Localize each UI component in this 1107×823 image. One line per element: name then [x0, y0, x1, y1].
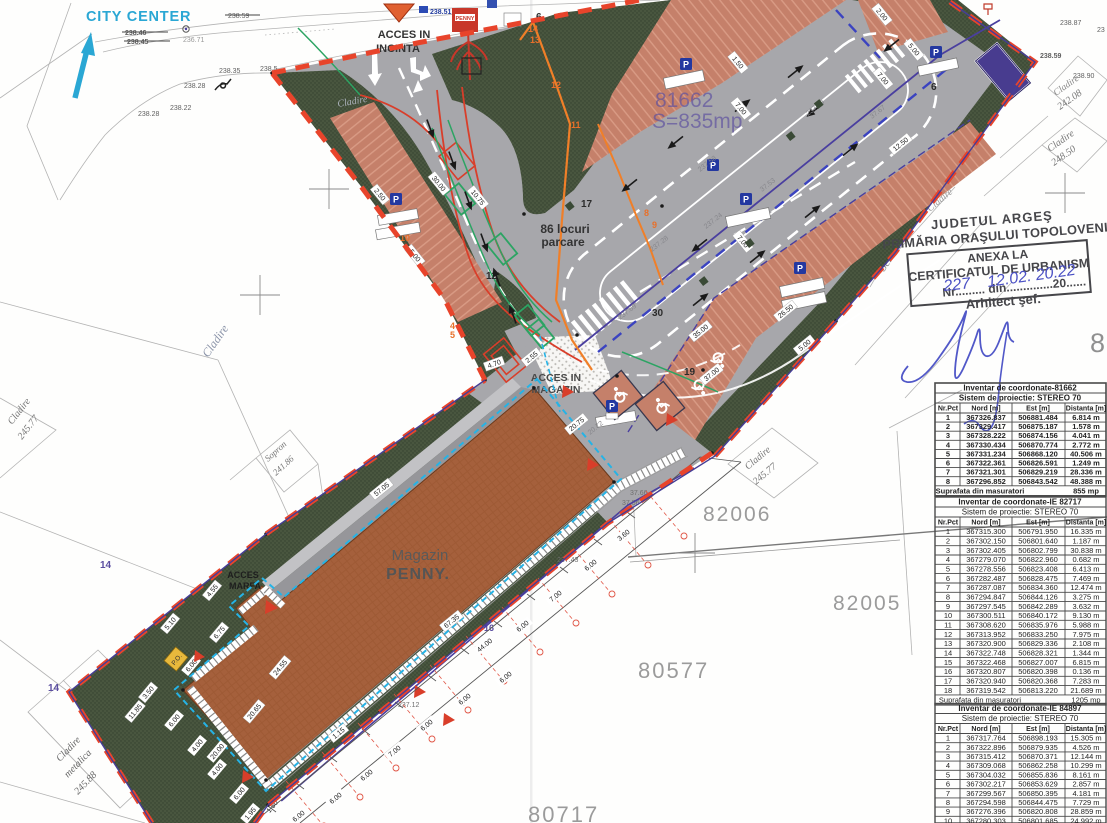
svg-text:Distanta [m]: Distanta [m] [1066, 406, 1106, 413]
svg-text:6: 6 [931, 82, 937, 93]
svg-text:367328.222: 367328.222 [966, 431, 1006, 440]
svg-text:506820.368: 506820.368 [1018, 676, 1058, 685]
svg-text:ACCES: ACCES [227, 570, 259, 580]
svg-text:5.988 m: 5.988 m [1072, 621, 1099, 630]
svg-text:506829.219: 506829.219 [1018, 468, 1058, 477]
svg-text:237.12: 237.12 [398, 702, 420, 709]
svg-text:2.857 m: 2.857 m [1072, 780, 1099, 789]
svg-text:81662: 81662 [655, 89, 713, 112]
svg-text:367302.405: 367302.405 [966, 546, 1006, 555]
svg-text:367331.234: 367331.234 [966, 449, 1006, 458]
svg-text:S=835mp: S=835mp [652, 110, 742, 133]
svg-text:23: 23 [1097, 27, 1105, 34]
svg-text:2: 2 [946, 422, 950, 431]
svg-text:Inventar de coordonate-IE 8271: Inventar de coordonate-IE 82717 [958, 498, 1082, 507]
svg-text:40.506 m: 40.506 m [1070, 449, 1102, 458]
svg-text:367287.087: 367287.087 [966, 583, 1006, 592]
svg-text:16.335 m: 16.335 m [1070, 527, 1101, 536]
svg-text:5: 5 [946, 770, 950, 779]
svg-text:7: 7 [946, 583, 950, 592]
svg-text:1.187 m: 1.187 m [1072, 537, 1099, 546]
svg-text:506802.799: 506802.799 [1018, 546, 1058, 555]
svg-text:367315.300: 367315.300 [966, 527, 1006, 536]
svg-text:13: 13 [530, 35, 540, 45]
svg-text:367326.837: 367326.837 [966, 413, 1006, 422]
svg-text:8: 8 [1090, 328, 1105, 358]
svg-text:367319.542: 367319.542 [966, 686, 1006, 695]
svg-text:12: 12 [551, 80, 561, 90]
svg-text:506868.120: 506868.120 [1018, 449, 1058, 458]
svg-text:6: 6 [946, 574, 950, 583]
svg-text:P: P [609, 402, 615, 412]
svg-text:9.130 m: 9.130 m [1072, 611, 1099, 620]
svg-text:80717: 80717 [528, 802, 599, 823]
svg-text:14: 14 [528, 24, 538, 34]
svg-text:82006: 82006 [703, 503, 771, 526]
svg-text:parcare: parcare [541, 235, 585, 249]
svg-text:14: 14 [944, 649, 952, 658]
svg-text:367320.940: 367320.940 [966, 676, 1006, 685]
svg-text:367321.301: 367321.301 [966, 468, 1006, 477]
svg-text:506820.398: 506820.398 [1018, 667, 1058, 676]
svg-text:Inventar de coordonate-IE 8489: Inventar de coordonate-IE 84897 [958, 704, 1082, 713]
svg-text:12.474 m: 12.474 m [1070, 583, 1101, 592]
svg-text:10.299 m: 10.299 m [1070, 761, 1101, 770]
svg-text:12.144 m: 12.144 m [1070, 752, 1101, 761]
svg-text:9: 9 [946, 602, 950, 611]
svg-text:506791.950: 506791.950 [1018, 527, 1058, 536]
svg-text:CITY CENTER: CITY CENTER [86, 9, 191, 25]
svg-text:7.975 m: 7.975 m [1072, 630, 1099, 639]
svg-text:PENNY.: PENNY. [386, 566, 450, 583]
svg-text:Nord [m]: Nord [m] [971, 406, 1000, 413]
svg-text:P: P [933, 48, 939, 58]
svg-text:506850.395: 506850.395 [1018, 789, 1058, 798]
svg-text:506862.258: 506862.258 [1018, 761, 1058, 770]
svg-text:7.729 m: 7.729 m [1072, 798, 1099, 807]
svg-text:17: 17 [944, 676, 952, 685]
svg-text:367322.896: 367322.896 [966, 743, 1006, 752]
svg-text:367313.952: 367313.952 [966, 630, 1006, 639]
svg-text:15: 15 [944, 658, 952, 667]
svg-text:Nord [m]: Nord [m] [971, 726, 1000, 733]
svg-text:Sistem de proiectie: STEREO: Sistem de proiectie: STEREO 70 [962, 508, 1079, 517]
svg-text:367302.150: 367302.150 [966, 537, 1006, 546]
svg-text:2: 2 [946, 743, 950, 752]
svg-text:Distanta [m]: Distanta [m] [1066, 726, 1106, 733]
svg-text:PENNY: PENNY [456, 16, 475, 22]
svg-text:367294.847: 367294.847 [966, 593, 1006, 602]
svg-text:506875.187: 506875.187 [1018, 422, 1058, 431]
svg-text:10: 10 [944, 816, 952, 823]
svg-text:367317.764: 367317.764 [966, 734, 1006, 743]
svg-text:3: 3 [946, 752, 950, 761]
svg-text:Sistem de proiectie: STEREO: Sistem de proiectie: STEREO 70 [959, 394, 1082, 403]
svg-text:Est [m]: Est [m] [1026, 520, 1050, 527]
svg-text:506881.484: 506881.484 [1018, 413, 1058, 422]
svg-text:4: 4 [946, 555, 950, 564]
svg-text:14: 14 [48, 683, 60, 694]
svg-text:6.815 m: 6.815 m [1072, 658, 1099, 667]
svg-text:4.041 m: 4.041 m [1072, 431, 1100, 440]
svg-text:48.388 m: 48.388 m [1070, 477, 1102, 486]
svg-text:236.71: 236.71 [183, 37, 205, 44]
svg-text:367315.412: 367315.412 [966, 752, 1006, 761]
svg-text:5: 5 [946, 449, 950, 458]
svg-text:11: 11 [944, 621, 952, 630]
svg-text:16: 16 [944, 667, 952, 676]
svg-text:Nr.Pct: Nr.Pct [938, 726, 959, 733]
svg-text:367308.620: 367308.620 [966, 621, 1006, 630]
svg-text:367330.434: 367330.434 [966, 440, 1006, 449]
svg-text:1: 1 [946, 413, 950, 422]
svg-text:506855.836: 506855.836 [1018, 770, 1058, 779]
svg-text:P: P [797, 264, 803, 274]
svg-text:15.305 m: 15.305 m [1070, 734, 1101, 743]
svg-text:11: 11 [571, 120, 581, 130]
svg-text:367276.396: 367276.396 [966, 807, 1006, 816]
svg-text:506842.289: 506842.289 [1018, 602, 1058, 611]
svg-text:28.336 m: 28.336 m [1070, 468, 1102, 477]
svg-text:506813.220: 506813.220 [1018, 686, 1058, 695]
svg-text:Suprafata din masuratori: Suprafata din masuratori [936, 486, 1025, 495]
svg-text:8: 8 [946, 798, 950, 807]
svg-text:P: P [743, 195, 749, 205]
svg-text:Est [m]: Est [m] [1026, 406, 1050, 413]
svg-text:6: 6 [946, 459, 950, 468]
svg-text:Sistem de proiectie: STEREO: Sistem de proiectie: STEREO 70 [962, 714, 1079, 723]
svg-text:82005: 82005 [833, 592, 901, 615]
svg-text:506828.321: 506828.321 [1018, 649, 1058, 658]
svg-text:367297.545: 367297.545 [966, 602, 1006, 611]
svg-text:5: 5 [946, 565, 950, 574]
svg-text:367299.567: 367299.567 [966, 789, 1006, 798]
svg-text:Nr.Pct: Nr.Pct [938, 520, 959, 527]
svg-text:30: 30 [652, 308, 664, 319]
svg-text:1: 1 [946, 527, 950, 536]
svg-text:367278.556: 367278.556 [966, 565, 1006, 574]
svg-text:367296.852: 367296.852 [966, 477, 1006, 486]
svg-text:18: 18 [944, 686, 952, 695]
svg-text:P: P [683, 60, 689, 70]
svg-text:21.689 m: 21.689 m [1070, 686, 1101, 695]
svg-text:238.45: 238.45 [127, 39, 149, 46]
svg-text:3: 3 [946, 546, 950, 555]
svg-text:7.469 m: 7.469 m [1072, 574, 1099, 583]
svg-text:506834.360: 506834.360 [1018, 583, 1058, 592]
svg-text:1.344 m: 1.344 m [1072, 649, 1099, 658]
svg-text:2.772 m: 2.772 m [1072, 440, 1100, 449]
svg-text:7: 7 [946, 468, 950, 477]
svg-text:506801.640: 506801.640 [1018, 537, 1058, 546]
svg-text:506829.336: 506829.336 [1018, 639, 1058, 648]
svg-text:506822.960: 506822.960 [1018, 555, 1058, 564]
svg-text:3.632 m: 3.632 m [1072, 602, 1099, 611]
svg-text:P: P [393, 195, 399, 205]
svg-text:28.859 m: 28.859 m [1070, 807, 1101, 816]
svg-text:506823.408: 506823.408 [1018, 565, 1058, 574]
svg-text:506801.685: 506801.685 [1018, 816, 1058, 823]
svg-text:367300.511: 367300.511 [966, 611, 1005, 620]
svg-text:4.526 m: 4.526 m [1072, 743, 1099, 752]
svg-text:367282.487: 367282.487 [966, 574, 1006, 583]
svg-text:367294.598: 367294.598 [966, 798, 1006, 807]
svg-text:506870.774: 506870.774 [1018, 440, 1058, 449]
svg-text:1.578 m: 1.578 m [1072, 422, 1100, 431]
svg-text:2.108 m: 2.108 m [1072, 639, 1099, 648]
svg-text:24.992 m: 24.992 m [1070, 816, 1101, 823]
svg-text:238.59: 238.59 [1040, 53, 1062, 60]
svg-text:3.275 m: 3.275 m [1072, 593, 1099, 602]
svg-text:Magazin: Magazin [392, 547, 449, 564]
svg-text:4: 4 [946, 761, 950, 770]
svg-text:13: 13 [944, 639, 952, 648]
svg-text:6.413 m: 6.413 m [1072, 565, 1099, 574]
svg-text:506826.591: 506826.591 [1018, 459, 1058, 468]
svg-text:506853.629: 506853.629 [1018, 780, 1058, 789]
svg-text:7.283 m: 7.283 m [1072, 676, 1099, 685]
svg-text:6: 6 [946, 780, 950, 789]
svg-text:17: 17 [581, 199, 593, 210]
svg-text:238.87: 238.87 [1060, 20, 1082, 27]
svg-text:1: 1 [946, 734, 950, 743]
svg-text:367320.900: 367320.900 [966, 639, 1006, 648]
svg-text:367302.217: 367302.217 [966, 780, 1006, 789]
svg-text:855 mp: 855 mp [1073, 486, 1099, 495]
svg-text:506833.250: 506833.250 [1018, 630, 1058, 639]
svg-text:14: 14 [100, 560, 112, 571]
svg-text:367329.417: 367329.417 [966, 422, 1006, 431]
svg-text:506820.808: 506820.808 [1018, 807, 1058, 816]
svg-text:367322.361: 367322.361 [966, 459, 1006, 468]
svg-text:0.136 m: 0.136 m [1072, 667, 1099, 676]
svg-text:Nr.Pct: Nr.Pct [938, 406, 959, 413]
svg-text:9: 9 [946, 807, 950, 816]
svg-text:5: 5 [450, 330, 455, 340]
svg-text:6.814 m: 6.814 m [1072, 413, 1100, 422]
svg-text:80577: 80577 [638, 658, 709, 683]
svg-text:Est [m]: Est [m] [1026, 726, 1050, 733]
svg-text:238.28: 238.28 [138, 111, 160, 118]
svg-text:367280.303: 367280.303 [966, 816, 1006, 823]
svg-text:506874.156: 506874.156 [1018, 431, 1058, 440]
svg-text:238.46: 238.46 [125, 30, 147, 37]
svg-text:506844.126: 506844.126 [1018, 593, 1058, 602]
svg-text:Nord [m]: Nord [m] [971, 520, 1000, 527]
svg-text:2: 2 [946, 537, 950, 546]
svg-text:ACCES IN: ACCES IN [378, 29, 431, 41]
svg-text:367320.807: 367320.807 [966, 667, 1006, 676]
svg-text:8: 8 [644, 208, 649, 218]
svg-text:1.249 m: 1.249 m [1072, 459, 1100, 468]
svg-text:506844.475: 506844.475 [1018, 798, 1058, 807]
svg-text:8: 8 [946, 593, 950, 602]
svg-text:4.181 m: 4.181 m [1072, 789, 1099, 798]
svg-text:0.682 m: 0.682 m [1072, 555, 1099, 564]
svg-text:506835.976: 506835.976 [1018, 621, 1058, 630]
svg-text:86 locuri: 86 locuri [540, 222, 589, 236]
svg-text:506843.542: 506843.542 [1018, 477, 1058, 486]
svg-text:238.22: 238.22 [170, 105, 192, 112]
svg-text:367322.748: 367322.748 [966, 649, 1006, 658]
svg-text:238.59: 238.59 [228, 13, 250, 20]
svg-text:8: 8 [946, 477, 950, 486]
svg-text:238.28: 238.28 [184, 83, 206, 90]
svg-text:227: 227 [942, 275, 972, 295]
svg-text:238.51: 238.51 [430, 9, 452, 16]
svg-text:19: 19 [684, 367, 696, 378]
svg-text:30.838 m: 30.838 m [1070, 546, 1101, 555]
svg-text:367309.068: 367309.068 [966, 761, 1006, 770]
svg-text:12: 12 [944, 630, 952, 639]
svg-text:8.161 m: 8.161 m [1072, 770, 1099, 779]
svg-text:367304.032: 367304.032 [966, 770, 1006, 779]
svg-text:Inventar de coordonate-81662: Inventar de coordonate-81662 [963, 384, 1077, 393]
svg-text:Distanta [m]: Distanta [m] [1066, 520, 1106, 527]
svg-text:10: 10 [944, 611, 952, 620]
svg-text:506827.007: 506827.007 [1018, 658, 1058, 667]
svg-text:7: 7 [946, 789, 950, 798]
svg-text:506828.475: 506828.475 [1018, 574, 1058, 583]
svg-text:9: 9 [652, 220, 657, 230]
svg-text:506840.172: 506840.172 [1018, 611, 1058, 620]
svg-text:506898.193: 506898.193 [1018, 734, 1058, 743]
svg-text:238.35: 238.35 [219, 68, 241, 75]
svg-text:506870.371: 506870.371 [1018, 752, 1058, 761]
svg-text:367279.070: 367279.070 [966, 555, 1006, 564]
svg-text:506879.935: 506879.935 [1018, 743, 1058, 752]
svg-text:367322.468: 367322.468 [966, 658, 1006, 667]
svg-text:3: 3 [946, 431, 950, 440]
